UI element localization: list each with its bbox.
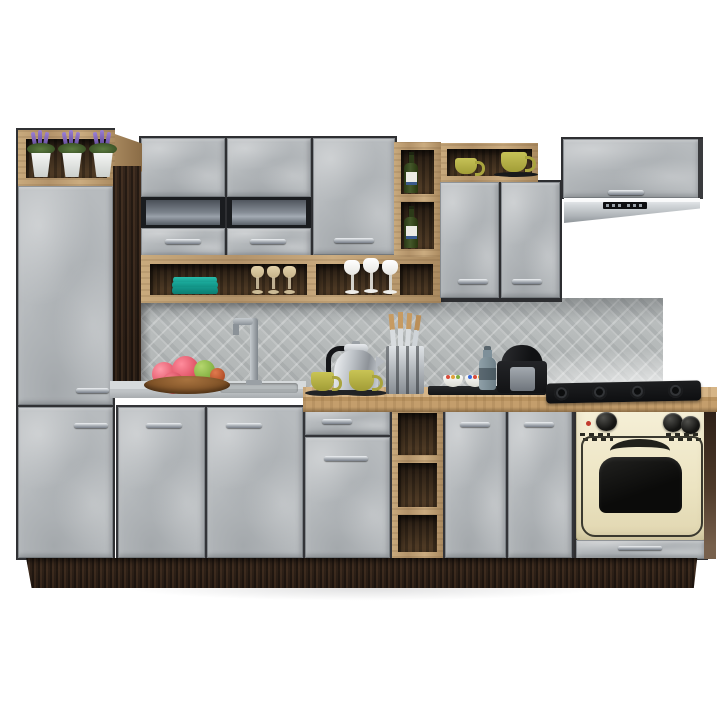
hob-burner — [668, 383, 683, 398]
cup-body — [455, 158, 477, 174]
tea-cup-with-saucer — [341, 366, 387, 396]
wine-bottle — [404, 206, 418, 248]
fruit-bowl — [144, 350, 232, 396]
base-door-4 — [445, 407, 506, 558]
wall-cabinet-tall-handle — [334, 238, 374, 243]
cup-handle — [372, 375, 383, 391]
tall-cabinet-lower-door — [18, 407, 113, 558]
hood-control-panel — [603, 202, 647, 209]
base-drawer-handle — [322, 419, 352, 424]
hood-cabinet-side-edge — [698, 139, 703, 199]
faucet-base — [246, 380, 262, 385]
plinth — [20, 558, 702, 588]
knife — [389, 314, 397, 348]
teal-plate — [172, 287, 218, 294]
wenge-filler-panel — [113, 166, 141, 396]
base-door-2-handle — [226, 423, 262, 428]
wall-cabinet-double-right-handle — [512, 279, 542, 284]
base-door-5-handle — [524, 422, 554, 427]
gray-bottle — [479, 346, 496, 390]
hob-burner — [592, 384, 607, 399]
bottle-label-band — [406, 236, 417, 239]
glass-insert — [146, 200, 220, 225]
wall-cabinet-a1-top-door — [141, 138, 225, 197]
base-door-4-handle — [460, 422, 490, 427]
faucet-spout-tip — [233, 324, 239, 335]
knife — [405, 313, 412, 348]
base-shelf-cell — [398, 515, 437, 552]
tall-cabinet-lower-handle — [74, 423, 108, 428]
tall-cabinet-upper-door — [18, 186, 113, 405]
teal-plate-stack — [172, 277, 218, 294]
tea-cup-with-saucer — [303, 368, 345, 396]
base-door-3-handle — [324, 456, 368, 461]
potted-lavender — [59, 132, 87, 180]
base-open-shelf — [392, 407, 443, 558]
oven-knob — [663, 413, 683, 432]
olive-cup-with-saucer — [493, 152, 539, 178]
hood-buttons — [606, 204, 622, 207]
hob-burner — [554, 385, 569, 400]
cup-handle — [525, 156, 536, 172]
olive-cup — [455, 158, 481, 175]
base-door-1 — [118, 407, 205, 558]
potted-lavender — [28, 132, 56, 180]
coffee-machine-front-panel — [510, 367, 535, 391]
wall-cabinet-double-left-handle — [458, 279, 488, 284]
faucet-post — [250, 318, 258, 382]
gas-hob — [546, 380, 701, 403]
cup-body — [311, 372, 334, 391]
base-door-1-handle — [146, 423, 182, 428]
faucet — [233, 318, 267, 386]
black-saucer — [494, 172, 538, 177]
oven-drawer-handle — [618, 546, 662, 550]
wall-cabinet-a2-handle — [250, 239, 286, 244]
cup-body — [501, 152, 527, 172]
kitchen-product-photo — [0, 0, 720, 720]
bottle-band — [479, 368, 496, 380]
right-side-panel — [704, 402, 716, 559]
oven-knob — [596, 412, 617, 431]
hob-burner — [630, 384, 645, 399]
base-shelf-cell — [398, 463, 437, 507]
cooker-hood — [564, 198, 700, 223]
wine-bottle — [404, 152, 418, 193]
oven-knob — [681, 416, 700, 434]
wooden-bowl — [144, 376, 230, 394]
coffee-machine — [497, 345, 547, 393]
knife-block-body — [386, 346, 424, 394]
hood-buttons — [627, 204, 643, 207]
knife — [398, 312, 403, 348]
shelf-cell — [400, 264, 433, 295]
wall-cabinet-a1-glass-frame — [141, 197, 225, 228]
oven-indicator-light — [586, 421, 591, 426]
oven-window — [599, 457, 682, 513]
knife — [412, 315, 422, 348]
cup-body — [349, 370, 374, 391]
wall-cabinet-a1-handle — [165, 239, 201, 244]
floor-shadow — [26, 588, 702, 606]
glass-insert — [232, 200, 306, 225]
wall-cabinet-a2-glass-frame — [227, 197, 311, 228]
base-shelf-cell — [398, 413, 437, 455]
hood-cabinet-handle — [608, 190, 644, 195]
base-door-2 — [207, 407, 303, 558]
candy-bowl — [443, 373, 463, 387]
black-saucer — [343, 390, 387, 396]
bottle-label-band — [406, 182, 417, 185]
tall-cabinet-upper-handle — [76, 388, 109, 393]
knife-block — [384, 312, 426, 394]
base-door-5 — [508, 407, 572, 558]
wall-cabinet-a2-top-door — [227, 138, 311, 197]
